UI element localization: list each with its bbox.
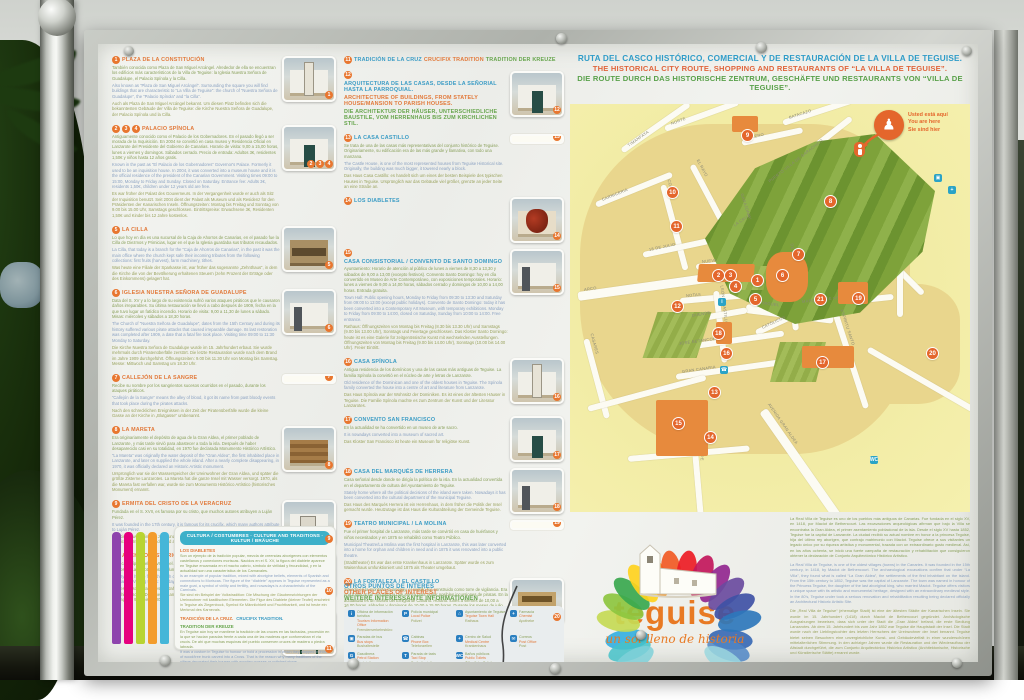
map-marker-13: 13 — [709, 387, 720, 398]
culture-header: CULTURA / COSTUMBRES · CULTURE AND TRADI… — [180, 531, 330, 545]
poi-item-head: 1PLAZA DE LA CONSTITUCIÓN — [112, 56, 280, 64]
poi-photo-badges: 6 — [325, 324, 333, 332]
poi-item-title: TRADITION DER KREUZE — [486, 57, 556, 63]
bolt — [952, 658, 962, 668]
culture-box: CULTURA / COSTUMBRES · CULTURE AND TRADI… — [174, 526, 336, 650]
poi-text-en: The Church of “Nuestra Señora de Guadalu… — [112, 321, 280, 343]
poi-photo: 8 — [282, 426, 336, 472]
poi-photo: 16 — [510, 358, 564, 404]
poi-item-title: CASA SPÍNOLA — [354, 359, 397, 365]
map-marker-2: 2 — [713, 270, 724, 281]
poi-item-text: 12ARQUITECTURA DE LAS CASAS, DESDE LA SE… — [344, 71, 508, 128]
legend-icon-⌂: ⌂ — [456, 610, 463, 617]
number-badge: 14 — [553, 232, 561, 240]
poi-item-head: 15CASA CONSISTORIAL / CONVENTO DE SANTO … — [344, 249, 508, 265]
about-es: La Real Villa de Teguise es uno de los p… — [790, 516, 970, 558]
map-building — [656, 400, 708, 456]
map-marker-5: 5 — [750, 294, 761, 305]
poi-item-head: 13LA CASA CASTILLO — [344, 134, 508, 142]
poi-item-title: LA CILLA — [122, 227, 148, 233]
culture-section: LOS DIABLETESSon un ejemplo de la tradic… — [180, 548, 330, 613]
poi-item-title: LA MARETA — [122, 427, 155, 433]
legend-grid: iOficina de información turísticaTourism… — [344, 606, 564, 662]
poi-item-title: ARCHITECTURE OF BUILDINGS, FROM STATELY … — [344, 95, 508, 107]
poi-item-text: 19TEATRO MUNICIPAL / LA MOLINAFue el pri… — [344, 520, 508, 572]
poi-photo-wrap: 19 — [512, 520, 564, 572]
poi-item-text: 17CONVENTO SAN FRANCISCOEn la actualidad… — [344, 416, 508, 462]
legend-item-text: GasolineraPetrol StationTankstelle — [357, 652, 379, 662]
number-badge: 8 — [112, 426, 120, 434]
culture-section: CULTURA / COSTUMBRES · CULTURE AND TRADI… — [112, 526, 336, 650]
poi-item: 7CALLEJÓN DE LA SANGRERecibe su nombre p… — [112, 374, 336, 420]
number-badge: 13 — [344, 134, 352, 142]
map-icon-☎: ☎ — [720, 366, 728, 374]
poi-text-en: The Castle House, is one of the most rep… — [344, 161, 508, 172]
poi-photo: 234 — [282, 125, 336, 171]
poi-photo-badges: 7 — [325, 374, 333, 381]
poi-text-en: It is nowadays converted into a museum o… — [344, 432, 508, 437]
poi-text-de: Das Haus Spínola war der Wohnsitz der Do… — [344, 392, 508, 408]
photo-scene: 1PLAZA DE LA CONSTITUCIÓNTambién conocid… — [0, 0, 1024, 680]
legend-label-de: Fremdenverkehrsbüro — [357, 628, 398, 632]
bolt — [962, 46, 972, 56]
poi-item: 6IGLESIA NUESTRA SEÑORA DE GUADALUPEData… — [112, 289, 336, 368]
map-marker-9: 9 — [742, 130, 753, 141]
poi-photo: 12 — [510, 71, 564, 117]
bolt — [636, 630, 646, 640]
legend-item: ☎CabinasPhone BoxTelefonzellen — [402, 635, 452, 648]
other-places-legend: OTROS PUNTOS DE INTERÉS OTHER PLACES OF … — [344, 584, 564, 662]
poi-item-title: CALLEJÓN DE LA SANGRE — [122, 375, 197, 381]
culture-section-title: TRADICIÓN DE LA CRUZ.CRUCIFIX TRADITION.… — [180, 616, 330, 629]
poi-item-head: 17CONVENTO SAN FRANCISCO — [344, 416, 508, 424]
map-building — [802, 346, 854, 368]
poi-item-title: IGLESIA NUESTRA SEÑORA DE GUADALUPE — [122, 290, 247, 296]
poi-photo-wrap: 6 — [284, 289, 336, 368]
poi-item: 12ARQUITECTURA DE LAS CASAS, DESDE LA SE… — [344, 71, 564, 128]
poi-photo-wrap: 13 — [512, 134, 564, 191]
number-badge: 1 — [112, 56, 120, 64]
poi-item-title: DIE ARCHITEKTUR DER HÄUSER, UNTERSCHIEDL… — [344, 109, 508, 127]
poi-text-es: Casa señorial desde donde se dirigía la … — [344, 477, 508, 488]
poi-text-de: Auch als Plaza de San Miguel Arcángel be… — [112, 101, 280, 117]
bolt — [160, 655, 171, 666]
legend-icon-P: P — [402, 610, 409, 617]
poi-list-middle: 11TRADICIÓN DE LA CRUZCRUCIFIX TRADITION… — [344, 56, 564, 662]
poi-text-de: Es war früher der Palast des Gouverneurs… — [112, 191, 280, 218]
map-icon-WC: WC — [870, 456, 878, 464]
poi-text-de: Das Haus Casa Castillo: es handelt sich … — [344, 173, 508, 189]
legend-label-en: Tourism Information Office — [357, 619, 398, 628]
poi-item: 14LOS DIABLETES14 — [344, 197, 564, 243]
you-are-here-label: Usted está aquí You are here Sie sind hi… — [908, 112, 948, 134]
legend-label-es: Oficina de información turística — [357, 610, 398, 619]
number-badge: 4 — [132, 125, 140, 133]
poi-item-title: CRUCIFIX TRADITION — [424, 57, 484, 63]
number-badge: 6 — [325, 324, 333, 332]
number-badge: 1 — [325, 91, 333, 99]
number-badge: 7 — [325, 374, 333, 381]
poi-text-en: “La Mareta” was originally the water dep… — [112, 453, 280, 469]
legend-item: TParada de taxisTaxi StopTaxihaltestelle — [402, 652, 452, 662]
poi-text-en: Old residence of the Dominican and one o… — [344, 380, 508, 391]
poi-item-title: LOS DIABLETES — [354, 198, 400, 204]
castle-icon — [630, 542, 722, 600]
poi-item-head: 18CASA DEL MARQUÉS DE HERRERA — [344, 468, 508, 476]
left-pole — [40, 0, 74, 680]
logo-tagline: un sol lleno de historia — [570, 632, 780, 646]
poi-item-head: 9ERMITA DEL CRISTO DE LA VERACRUZ — [112, 500, 280, 508]
poi-item: 234PALACIO SPÍNOLAAntiguamente conocido … — [112, 125, 336, 220]
poi-photo-badges: 19 — [553, 520, 561, 527]
culture-title-part: TRADICIÓN DE LA CRUZ. — [180, 616, 233, 621]
poi-text-es: Era originariamente el depósito de agua … — [112, 435, 280, 451]
poi-item-head: 11TRADICIÓN DE LA CRUZCRUCIFIX TRADITION… — [344, 56, 564, 64]
map-marker-11: 11 — [671, 221, 682, 232]
number-badge: 6 — [112, 289, 120, 297]
culture-section: TRADICIÓN DE LA CRUZ.CRUCIFIX TRADITION.… — [180, 616, 330, 662]
poi-photo-wrap: 7 — [284, 374, 336, 420]
poi-text-de: Die Kirche Nuestra Señora de Guadalupe w… — [112, 345, 280, 367]
legend-item-text: Baños públicosPublic ToiletsÖffentliche … — [465, 652, 496, 662]
poi-text-es: Fundada en el S. XVII, es famosa por su … — [112, 509, 280, 520]
you-are-here-en: You are here — [908, 119, 948, 126]
map-icon-+: + — [948, 186, 956, 194]
poi-item-text: 6IGLESIA NUESTRA SEÑORA DE GUADALUPEData… — [112, 289, 280, 368]
number-badge: 2 — [112, 125, 120, 133]
poi-item-text: 7CALLEJÓN DE LA SANGRERecibe su nombre p… — [112, 374, 280, 420]
number-badge: 15 — [344, 249, 352, 257]
poi-text-es: Ayuntamiento: Horario de atención al púb… — [344, 266, 508, 293]
poi-text-de: Das Kloster San Francisco ist heute ein … — [344, 439, 508, 444]
poi-text-en: Stately home where all the political dec… — [344, 490, 508, 501]
map-marker-17: 17 — [817, 357, 828, 368]
culture-text-es: Son un ejemplo de la tradición popular, … — [180, 554, 330, 574]
poi-text-de: (Stadttheater) Es war das erste Krankenh… — [344, 560, 508, 571]
right-pole — [994, 30, 1018, 680]
bolt — [348, 658, 359, 669]
poi-item-text: 8LA MARETAEra originariamente el depósit… — [112, 426, 280, 494]
culture-sections: LOS DIABLETESSon un ejemplo de la tradic… — [180, 548, 330, 662]
poi-photo-badges: 20 — [553, 613, 561, 621]
number-badge: 15 — [553, 284, 561, 292]
poi-item-text: 234PALACIO SPÍNOLAAntiguamente conocido … — [112, 125, 280, 220]
poi-item-title: CASA DEL MARQUÉS DE HERRERA — [354, 469, 453, 475]
poi-photo-wrap: 234 — [284, 125, 336, 220]
poi-photo-wrap: 12 — [512, 71, 564, 128]
about-en: La Real Villa de Teguise, is one of the … — [790, 562, 970, 604]
poi-photo-badges: 16 — [553, 393, 561, 401]
number-badge: 19 — [553, 520, 561, 527]
map-marker-16: 16 — [721, 348, 732, 359]
map-marker-20: 20 — [927, 348, 938, 359]
poi-item: 1PLAZA DE LA CONSTITUCIÓNTambién conocid… — [112, 56, 336, 119]
poi-text-es: Antiguamente conocido como el Palacio de… — [112, 134, 280, 161]
poi-photo-badges: 13 — [553, 134, 561, 141]
legend-item: iOficina de información turísticaTourism… — [348, 610, 398, 632]
poi-text-es: Se trata de una de las casas más represe… — [344, 143, 508, 159]
poi-photo: 7 — [282, 374, 336, 384]
number-badge: 13 — [553, 134, 561, 141]
teguise-logo: teguise un sol lleno de historia — [570, 512, 780, 660]
poi-text-en: Municipal Theatre/La Molina was the firs… — [344, 542, 508, 558]
poi-text-es: Lo que hoy en día es una sucursal de la … — [112, 235, 280, 246]
legend-label-de: Bushaltestelle — [357, 644, 382, 648]
poi-photo-badges: 17 — [553, 451, 561, 459]
poi-photo-badges: 234 — [307, 160, 333, 168]
poi-photo-wrap: 18 — [512, 468, 564, 514]
you-are-here-es: Usted está aquí — [908, 112, 948, 119]
number-badge: 12 — [553, 106, 561, 114]
poi-item-text: 11TRADICIÓN DE LA CRUZCRUCIFIX TRADITION… — [344, 56, 564, 65]
legend-item-text: Centro de SaludMedical CentreKrankenhaus — [465, 635, 491, 648]
poi-item: 8LA MARETAEra originariamente el depósit… — [112, 426, 336, 494]
poi-item: 16CASA SPÍNOLAAntigua residencia de los … — [344, 358, 564, 410]
poi-photo-badges: 10 — [325, 587, 333, 595]
number-badge: 10 — [325, 587, 333, 595]
about-text: La Real Villa de Teguise es uno de los p… — [790, 516, 970, 660]
poi-item-head: 6IGLESIA NUESTRA SEÑORA DE GUADALUPE — [112, 289, 280, 297]
poi-item-title: PLAZA DE LA CONSTITUCIÓN — [122, 57, 205, 63]
poi-item-text: 14LOS DIABLETES — [344, 197, 508, 243]
color-stripe — [112, 532, 121, 644]
number-badge: 11 — [344, 56, 352, 64]
number-badge: 19 — [344, 520, 352, 528]
poi-item-title: LA CASA CASTILLO — [354, 135, 409, 141]
number-badge: 16 — [344, 358, 352, 366]
poi-photo-badges: 11 — [325, 645, 333, 653]
number-badge: 14 — [344, 197, 352, 205]
map-marker-18: 18 — [713, 328, 724, 339]
map-marker-7: 7 — [793, 249, 804, 260]
poi-item-title: PALACIO SPÍNOLA — [142, 126, 194, 132]
number-badge: 4 — [325, 160, 333, 168]
poi-item-title: ERMITA DEL CRISTO DE LA VERACRUZ — [122, 501, 231, 507]
culture-title-part: LOS DIABLETES — [180, 548, 215, 553]
city-map: NORTETILENOBATACAZOPUERTO VILLA DE GARAC… — [570, 104, 970, 512]
you-are-here: ♟ Usted está aquí You are here Sie sind … — [846, 108, 966, 164]
poi-photo-badges: 18 — [553, 503, 561, 511]
poi-photo: 5 — [282, 226, 336, 272]
sign-panel: 1PLAZA DE LA CONSTITUCIÓNTambién conocid… — [98, 44, 978, 662]
number-badge: 5 — [325, 261, 333, 269]
legend-item-text: Parada de taxisTaxi StopTaxihaltestelle — [411, 652, 436, 662]
number-badge: 12 — [344, 71, 352, 79]
poi-text-en: Town Hall: Public opening hours, Monday … — [344, 295, 508, 322]
poi-text-de: Das Haus des Marqués Herrera ist ein Her… — [344, 502, 508, 513]
number-badge: 7 — [112, 374, 120, 382]
poi-photo-badges: 8 — [325, 461, 333, 469]
poi-text-es: Recibe su nombre por los sangrientos suc… — [112, 383, 280, 394]
legend-item-text: Oficina de información turísticaTourism … — [357, 610, 398, 632]
poi-photo-badges: 1 — [325, 91, 333, 99]
poi-item-head: 7CALLEJÓN DE LA SANGRE — [112, 374, 280, 382]
poi-photo-wrap: 8 — [284, 426, 336, 494]
map-marker-8: 8 — [825, 196, 836, 207]
poi-item-head: 8LA MARETA — [112, 426, 280, 434]
legend-item: ▣Paradas de busBus stopsBushaltestelle — [348, 635, 398, 648]
poi-text-es: Antigua residencia de los domínicos y un… — [344, 367, 508, 378]
number-badge: 3 — [316, 160, 324, 168]
legend-icon-☎: ☎ — [402, 635, 409, 642]
poi-photo-wrap: 5 — [284, 226, 336, 283]
number-badge: 2 — [307, 160, 315, 168]
legend-icon-i: i — [348, 610, 355, 617]
map-marker-3: 3 — [725, 270, 736, 281]
poi-text-es: También conocida como Plaza de San Migue… — [112, 65, 280, 81]
number-badge: 11 — [325, 645, 333, 653]
legend-item-text: Paradas de busBus stopsBushaltestelle — [357, 635, 382, 648]
poi-item-head: 19TEATRO MUNICIPAL / LA MOLINA — [344, 520, 508, 528]
about-de: Die „Real Villa de Teguise“ (ehemalige S… — [790, 608, 970, 655]
legend-icon-+: + — [456, 635, 463, 642]
poi-photo-badges: 14 — [553, 232, 561, 240]
poi-photo-badges: 15 — [553, 284, 561, 292]
number-badge: 20 — [553, 613, 561, 621]
poi-text-de: Was heute eine Filiale der Sparkasse ist… — [112, 265, 280, 281]
poi-item-head: 14LOS DIABLETES — [344, 197, 508, 205]
poi-item: 17CONVENTO SAN FRANCISCOEn la actualidad… — [344, 416, 564, 462]
legend-item: PPolicía municipalLocal PolicePolizei — [402, 610, 452, 632]
culture-section-title: LOS DIABLETES — [180, 548, 330, 553]
poi-photo: 17 — [510, 416, 564, 462]
number-badge: 16 — [553, 393, 561, 401]
legend-label-de: Telefonzellen — [411, 644, 432, 648]
culture-title-part: TRADITION DER KREUZE — [180, 624, 234, 629]
poi-photo-badges: 9 — [325, 535, 333, 543]
culture-text-es: En Teguise aún hoy se mantiene la tradic… — [180, 630, 330, 650]
title-block: RUTA DEL CASCO HISTÓRICO, COMERCIAL Y DE… — [570, 54, 970, 93]
legend-icon-T: T — [402, 652, 409, 659]
bolt — [756, 42, 767, 53]
number-badge: 9 — [112, 500, 120, 508]
poi-item-text: 16CASA SPÍNOLAAntigua residencia de los … — [344, 358, 508, 410]
title-german: DIE ROUTE DURCH DAS HISTORISCHE ZENTRUM,… — [570, 74, 970, 92]
poi-item-head: 234PALACIO SPÍNOLA — [112, 125, 280, 133]
poi-item-text: 1PLAZA DE LA CONSTITUCIÓNTambién conocid… — [112, 56, 280, 119]
poi-photo-wrap: 14 — [512, 197, 564, 243]
poi-item-head: 12ARQUITECTURA DE LAS CASAS, DESDE LA SE… — [344, 71, 508, 127]
poi-item: 19TEATRO MUNICIPAL / LA MOLINAFue el pri… — [344, 520, 564, 572]
color-stripes — [112, 526, 169, 650]
title-spanish: RUTA DEL CASCO HISTÓRICO, COMERCIAL Y DE… — [570, 54, 970, 63]
poi-photo-wrap: 17 — [512, 416, 564, 462]
poi-text-es: Fue el primer hospital de Lanzarote, más… — [344, 529, 508, 540]
legend-icon-▣: ▣ — [348, 635, 355, 642]
culture-text-de: Sie sind ein Beispiel der Volkstradition… — [180, 593, 330, 613]
title-english: THE HISTORICAL CITY ROUTE, SHOPPING AND … — [570, 64, 970, 73]
poi-text-de: Nach den schrecklichen Ereignissen in de… — [112, 408, 280, 419]
map-marker-15: 15 — [673, 418, 684, 429]
culture-text-en: Is an example of popular tradition, mixe… — [180, 574, 330, 594]
map-marker-1: 1 — [752, 275, 763, 286]
poi-item-text: 15CASA CONSISTORIAL / CONVENTO DE SANTO … — [344, 249, 508, 352]
poi-item-head: 16CASA SPÍNOLA — [344, 358, 508, 366]
poi-item-title: CONVENTO SAN FRANCISCO — [354, 417, 435, 423]
number-badge: 5 — [112, 226, 120, 234]
color-stripe — [160, 532, 169, 644]
number-badge: 18 — [344, 468, 352, 476]
poi-text-en: “Callejón de la Sangre” means the alley … — [112, 395, 280, 406]
map-marker-21: 21 — [815, 294, 826, 305]
poi-photo: 1 — [282, 56, 336, 102]
poi-item: 18CASA DEL MARQUÉS DE HERRERACasa señori… — [344, 468, 564, 514]
poi-item-title: ARQUITECTURA DE LAS CASAS, DESDE LA SEÑO… — [344, 81, 508, 93]
poi-photo: 18 — [510, 468, 564, 514]
poi-photo: 15 — [510, 249, 564, 295]
poi-photo: 19 — [510, 520, 564, 530]
sea-glimpse — [0, 262, 44, 308]
poi-text-en: Also known as “Plaza de San Miguel Arcán… — [112, 83, 280, 99]
culture-title-part: CRUCIFIX TRADITION. — [236, 616, 283, 621]
you-are-here-pin — [854, 142, 865, 157]
color-stripe — [148, 532, 157, 644]
number-badge: 9 — [325, 535, 333, 543]
poi-item: 13LA CASA CASTILLOSe trata de una de las… — [344, 134, 564, 191]
number-badge: 8 — [325, 461, 333, 469]
number-badge: 17 — [344, 416, 352, 424]
poi-item-title: CASA CONSISTORIAL / CONVENTO DE SANTO DO… — [344, 259, 502, 265]
legend-label-de: Polizei — [411, 619, 438, 623]
poi-photo-wrap: 16 — [512, 358, 564, 410]
culture-text-en: It was a custom in Teguise to honour or … — [180, 650, 330, 662]
legend-label-de: Taxihaltestelle — [411, 661, 436, 662]
poi-text-de: Rathaus: Öffnungszeiten von Montag bis F… — [344, 324, 508, 351]
poi-item: 5LA CILLALo que hoy en día es una sucurs… — [112, 226, 336, 283]
poi-item-title: TEATRO MUNICIPAL / LA MOLINA — [354, 521, 447, 527]
poi-text-en: La Cilla, that today is a branch for the… — [112, 247, 280, 263]
poi-photo: 14 — [510, 197, 564, 243]
map-marker-6: 6 — [777, 270, 788, 281]
poi-photo-badges: 12 — [553, 106, 561, 114]
poi-item-title: TRADICIÓN DE LA CRUZ — [354, 57, 422, 63]
legend-item-text: CabinasPhone BoxTelefonzellen — [411, 635, 432, 648]
poi-item-text: 5LA CILLALo que hoy en día es una sucurs… — [112, 226, 280, 283]
map-icon-▣: ▣ — [934, 174, 942, 182]
legend-title-de: WEITERE INTERESSANTE INFORMATIONEN — [344, 596, 564, 602]
poi-photo: 13 — [510, 134, 564, 144]
legend-label-de: Tankstelle — [357, 661, 379, 662]
you-are-here-de: Sie sind hier — [908, 127, 948, 134]
poi-item: 15CASA CONSISTORIAL / CONVENTO DE SANTO … — [344, 249, 564, 352]
legend-item-text: Policía municipalLocal PolicePolizei — [411, 610, 438, 623]
poi-item-head: 5LA CILLA — [112, 226, 280, 234]
map-marker-14: 14 — [705, 432, 716, 443]
number-badge: 18 — [553, 503, 561, 511]
legend-icon-WC: WC — [456, 652, 463, 659]
bolt — [550, 663, 561, 674]
color-stripe — [136, 532, 145, 644]
poi-photo-wrap: 1 — [284, 56, 336, 119]
poi-photo-badges: 5 — [325, 261, 333, 269]
poi-item-text: 13LA CASA CASTILLOSe trata de una de las… — [344, 134, 508, 191]
map-marker-12: 12 — [672, 301, 683, 312]
scratch-mark — [493, 584, 523, 662]
bolt — [556, 33, 567, 44]
poi-text-de: Ursprünglich war sie der Wasserspeicher … — [112, 471, 280, 493]
legend-label-de: Krankenhaus — [465, 644, 491, 648]
poi-text-es: En la actualidad se ha convertido en un … — [344, 425, 508, 430]
poi-photo: 6 — [282, 289, 336, 335]
bolt — [124, 46, 134, 56]
color-stripe — [124, 532, 133, 644]
number-badge: 3 — [122, 125, 130, 133]
poi-text-es: Data del S. XV y a lo largo de su existe… — [112, 298, 280, 320]
map-marker-4: 4 — [730, 281, 741, 292]
poi-text-en: Known in the past as “El Palacio de los … — [112, 162, 280, 189]
legend-label-de: Öffentliche Toiletten — [465, 661, 496, 662]
poi-photo-wrap: 15 — [512, 249, 564, 352]
